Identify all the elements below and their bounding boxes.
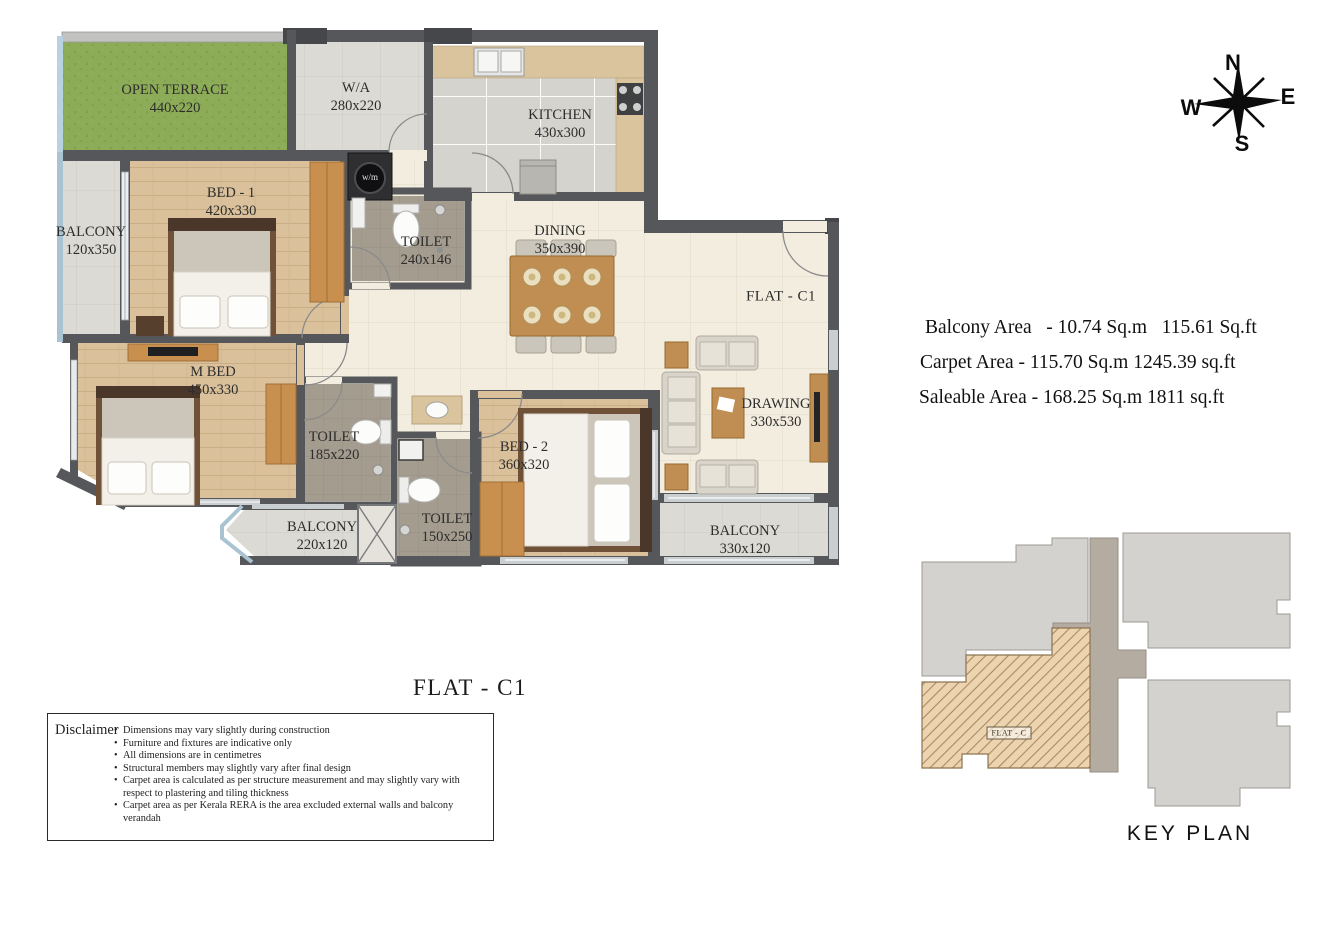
room-label-drawing: DRAWING 330x530 (742, 395, 811, 431)
page-title: FLAT - C1 (413, 675, 527, 701)
kitchen-counter-top (429, 46, 644, 78)
compass-north-label: N (1225, 50, 1241, 76)
key-plan-flat-bottom-right (1148, 680, 1290, 806)
washing-machine-label: w/m (362, 172, 378, 182)
room-label-dining: DINING 350x390 (534, 222, 586, 258)
key-plan-title: KEY PLAN (1127, 822, 1253, 846)
duct-shaft (358, 505, 396, 563)
disclaimer-box: Disclaimer Dimensions may vary slightly … (47, 713, 494, 841)
room-label-balcony-left: BALCONY 120x350 (56, 223, 126, 259)
room-label-balcony330: BALCONY 330x120 (710, 522, 780, 558)
disclaimer-item: Carpet area is calculated as per structu… (114, 775, 490, 800)
room-label-mbed: M BED 450x330 (188, 363, 239, 399)
key-plan-flat-label: FLAT - C (987, 727, 1032, 740)
room-label-toilet3: TOILET 150x250 (422, 510, 473, 546)
disclaimer-item: Furniture and fixtures are indicative on… (114, 738, 490, 751)
room-label-open-terrace: OPEN TERRACE 440x220 (121, 81, 228, 117)
disclaimer-item: All dimensions are in centimetres (114, 750, 490, 763)
compass-south-label: S (1235, 131, 1250, 157)
balcony-area-text: Balcony Area - 10.74 Sq.m 115.61 Sq.ft (925, 317, 1257, 339)
floor-plan-page: OPEN TERRACE 440x220 W/A 280x220 KITCHEN… (0, 0, 1343, 950)
disclaimer-item: Structural members may slightly vary aft… (114, 763, 490, 776)
saleable-area-text: Saleable Area - 168.25 Sq.m 1811 sq.ft (919, 387, 1224, 409)
key-plan-shapes (922, 533, 1290, 806)
room-label-bed1: BED - 1 420x330 (206, 184, 257, 220)
compass-east-label: E (1281, 84, 1296, 110)
room-label-toilet2: TOILET 185x220 (309, 428, 360, 464)
compass-west-label: W (1181, 95, 1202, 121)
room-label-bed2: BED - 2 360x320 (499, 438, 550, 474)
disclaimer-list: Dimensions may vary slightly during cons… (114, 725, 490, 825)
key-plan-flat-top-right (1123, 533, 1290, 648)
disclaimer-item: Dimensions may vary slightly during cons… (114, 725, 490, 738)
disclaimer-title: Disclaimer (55, 722, 119, 739)
room-label-balcony220: BALCONY 220x120 (287, 518, 357, 554)
flat-label-inplan: FLAT - C1 (746, 288, 816, 307)
carpet-area-text: Carpet Area - 115.70 Sq.m 1245.39 sq.ft (920, 352, 1236, 374)
disclaimer-item: Carpet area as per Kerala RERA is the ar… (114, 800, 490, 825)
room-label-washing-area: W/A 280x220 (331, 79, 382, 115)
wash-basin-counter (412, 396, 462, 424)
room-label-kitchen: KITCHEN 430x300 (528, 106, 592, 142)
room-label-toilet1: TOILET 240x146 (401, 233, 452, 269)
